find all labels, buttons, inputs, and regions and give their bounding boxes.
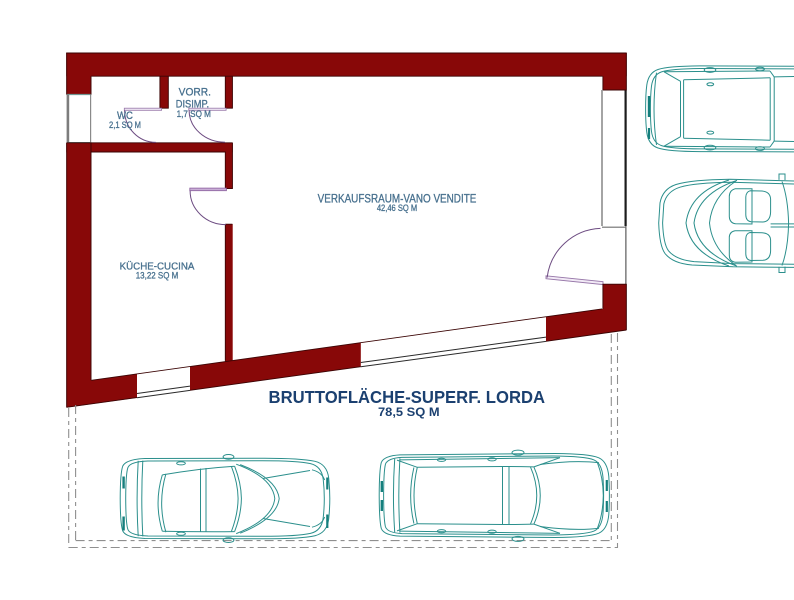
svg-text:42,46 SQ M: 42,46 SQ M	[377, 203, 417, 213]
svg-text:2,1 SQ M: 2,1 SQ M	[109, 120, 141, 130]
svg-text:1,7 SQ M: 1,7 SQ M	[177, 109, 211, 119]
svg-text:BRUTTOFLÄCHE-SUPERF. LORDA: BRUTTOFLÄCHE-SUPERF. LORDA	[269, 387, 546, 407]
svg-text:78,5 SQ M: 78,5 SQ M	[378, 405, 440, 419]
svg-text:13,22 SQ M: 13,22 SQ M	[136, 270, 179, 280]
svg-text:VORR.: VORR.	[179, 87, 211, 99]
